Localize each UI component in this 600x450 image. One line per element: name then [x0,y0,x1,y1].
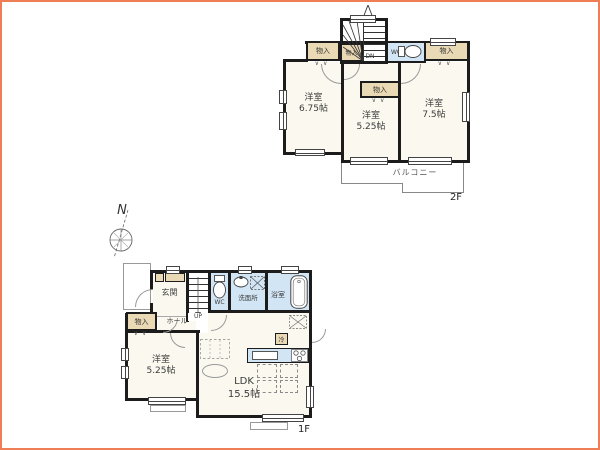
washing-machine-icon [250,276,265,290]
refrigerator-box: 冷 [275,333,288,345]
f1-closet: 物入 [126,312,157,331]
bathtub-icon [290,275,308,309]
f1-washroom-label: 洗面所 [231,294,265,302]
floor1-plan: 物入 ∨∨ UP [0,0,600,450]
wall [208,310,312,313]
wall [228,272,231,313]
shoe-cabinet [155,273,164,282]
dining-set-outline [280,380,298,393]
f1-entrance-label: 玄関 [152,288,187,298]
kitchen-sink [252,351,278,360]
f1-hall-label: ホール [158,317,196,326]
pantry-space-icon [289,315,307,329]
room-name: 洋室 [152,355,170,365]
f1-floor-label: 1F [292,424,316,437]
f1-western-room-label: 洋室 5.25帖 [133,355,189,378]
f1-bath-label: 浴室 [266,291,290,300]
dining-set-outline [280,364,298,378]
room-name: LDK [234,376,254,387]
f1-wc-label: WC [211,299,228,307]
wall [150,270,153,290]
room-size: 15.5帖 [228,389,260,400]
outside-step [150,405,186,412]
window [121,366,129,379]
kitchen-island-outline [200,339,230,359]
outside-step [250,422,288,430]
shoe-cabinet [165,273,185,282]
window [238,266,252,274]
wall [208,272,211,313]
room-size: 5.25帖 [146,366,175,376]
window [306,386,314,408]
window [262,414,304,422]
stove-icon [291,349,308,362]
f1-ldk-label: LDK 15.5帖 [214,376,274,401]
toilet-icon [212,275,227,301]
washbasin-icon [233,276,249,288]
back-door-arc [312,329,326,343]
floorplan-image: N 物入 物入 物入 物入 WC ∨∨ ∨∨ ∨∨ [0,0,600,450]
window [148,397,186,405]
wall [196,333,199,401]
window [281,266,299,274]
window [166,266,180,274]
folding-door-mark: ∨∨ [130,331,154,337]
window [121,348,129,361]
